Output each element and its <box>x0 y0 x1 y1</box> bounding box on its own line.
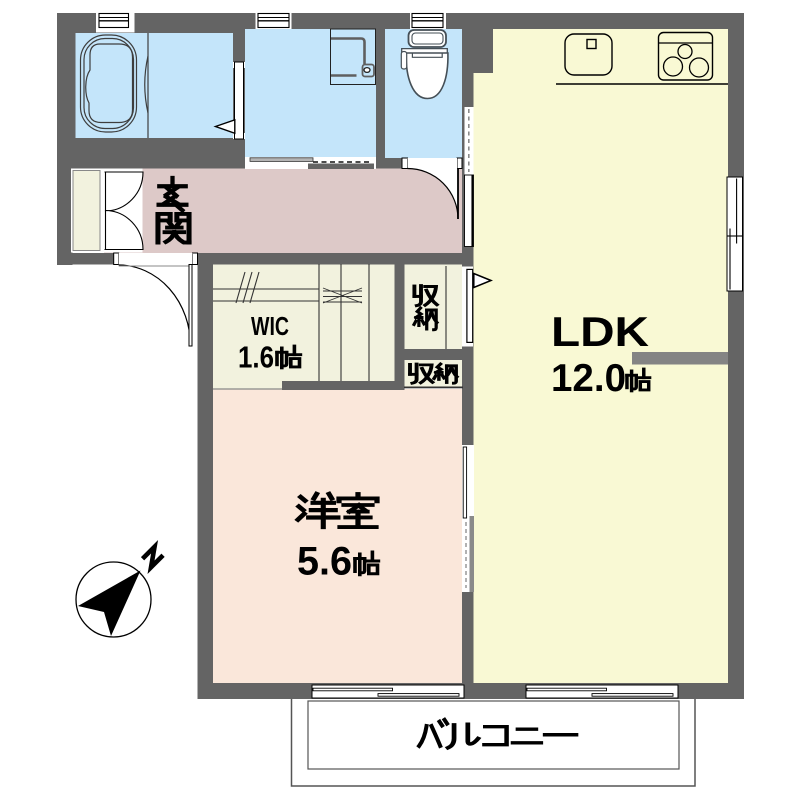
svg-text:12.0: 12.0 <box>551 357 626 400</box>
svg-text:WIC: WIC <box>251 311 289 341</box>
svg-text:1.6: 1.6 <box>238 340 274 375</box>
svg-text:5.6: 5.6 <box>297 540 352 584</box>
svg-text:LDK: LDK <box>551 308 649 355</box>
